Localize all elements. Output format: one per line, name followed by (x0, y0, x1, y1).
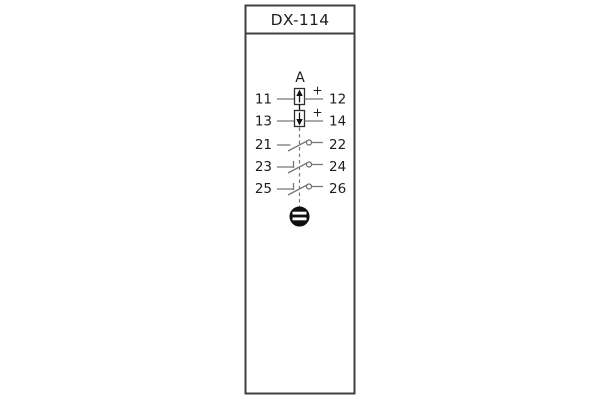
terminal-row-13-14: 13 + 14 (255, 106, 346, 130)
terminal-row-11-12: 11 + 12 (255, 84, 346, 108)
polarity-plus-mark: + (312, 106, 322, 120)
terminal-label-right: 22 (329, 137, 346, 153)
terminal-label-right: 24 (329, 159, 346, 175)
normally-open-contact-icon (288, 140, 323, 151)
normally-open-contact-icon (288, 183, 323, 195)
element-group-label: A (295, 70, 305, 86)
relay-model-title: DX-114 (271, 11, 330, 29)
terminal-label-left: 23 (255, 159, 272, 175)
up-arrow-measuring-element-icon (295, 89, 305, 105)
terminal-row-23-24: 23 24 (255, 159, 346, 175)
terminal-label-right: 26 (329, 181, 346, 197)
screw-terminal-icon (290, 207, 309, 226)
terminal-label-left: 13 (255, 114, 272, 130)
normally-open-contact-icon (288, 161, 323, 173)
terminal-row-21-22: 21 22 (255, 137, 346, 153)
terminal-label-left: 25 (255, 181, 272, 197)
terminal-label-right: 14 (329, 114, 346, 130)
terminal-label-left: 21 (255, 137, 272, 153)
terminal-label-right: 12 (329, 92, 346, 108)
polarity-plus-mark: + (312, 84, 322, 98)
terminal-label-left: 11 (255, 92, 272, 108)
down-arrow-measuring-element-icon (295, 111, 305, 127)
diagram-canvas: DX-114 A 11 + 12 13 (0, 0, 600, 400)
relay-terminal-diagram: DX-114 A 11 + 12 13 (0, 0, 600, 400)
terminal-row-25-26: 25 26 (255, 181, 346, 197)
